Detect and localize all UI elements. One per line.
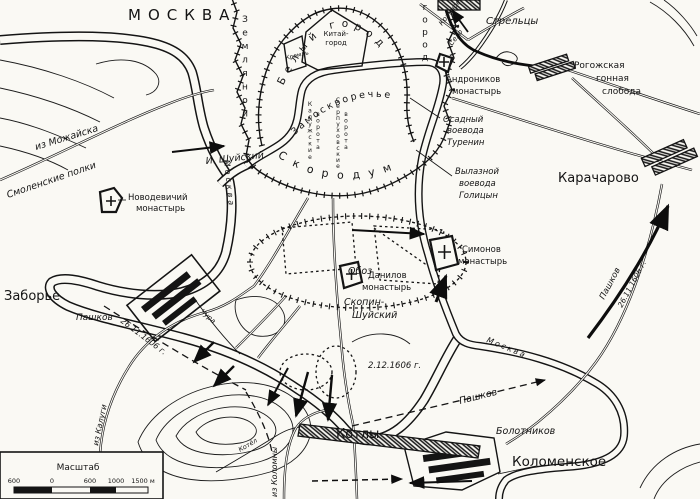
label-smolenskie-polki: Смоленские полки: [5, 160, 97, 201]
label-pashkov-south: Пашков: [458, 387, 499, 407]
fort-karacharovo: [641, 137, 697, 177]
arrow-pashkov-northeast: [588, 206, 668, 338]
label-streltsy: Стрельцы: [486, 16, 538, 27]
label-andronikov-2: монастырь: [452, 87, 501, 97]
label-bolotnikov: Болотников: [496, 426, 556, 437]
label-kotly: Котлы: [336, 427, 379, 442]
scale-box: Масштаб 600 0 600 1000 1500 м: [0, 452, 163, 499]
label-skopin-1: Скопин-: [344, 297, 385, 308]
zamoskvorechye-textpath: Замоскворечье: [289, 89, 393, 138]
scale-tick-2: 600: [84, 477, 96, 485]
map-canvas: МОСКВА Земляной город Белый город Замоск…: [0, 0, 700, 499]
label-turenin-3: Туренин: [447, 138, 485, 148]
label-novodevichy-1: Новодевичий: [128, 193, 188, 203]
roads: [0, 4, 700, 499]
label-skopin-2: Шуйский: [352, 310, 397, 321]
label-serpukhovskie-2: ворота: [344, 111, 348, 151]
label-zaborye: Заборье: [4, 289, 60, 304]
label-kaluzhskie-1: Калужские: [307, 101, 313, 161]
route-dashed-pashkov-south: [352, 380, 545, 426]
label-golitsyn-1: Вылазной: [455, 167, 499, 177]
label-kitay-1: Китай-: [324, 30, 349, 38]
scale-tick-3: 1000: [108, 477, 125, 485]
label-date-east: 26.11.1606 г.: [616, 259, 648, 309]
label-turenin-1: Осадный: [443, 115, 484, 125]
scale-tick-1: 0: [50, 477, 54, 485]
scale-title: Масштаб: [57, 463, 100, 473]
label-danilov-2: монастырь: [362, 283, 411, 293]
label-kolomenskoye: Коломенское: [512, 454, 606, 470]
label-pashkov-west: Пашков: [76, 313, 113, 323]
bridge-rogozhskaya: [529, 53, 576, 82]
scale-tick-0: 600: [8, 477, 20, 485]
label-iz-kalugi: из Калуги: [91, 404, 108, 447]
label-kotel: Котёл: [237, 437, 259, 454]
label-serpukhovskie-1: Серпуховские: [336, 97, 340, 170]
historic-map-moscow-1606: МОСКВА Земляной город Белый город Замоск…: [0, 0, 700, 499]
label-golitsyn-2: воевода: [459, 179, 496, 189]
label-kitay-2: город: [325, 39, 347, 47]
arrow-oboz-east: [352, 230, 424, 234]
label-date-center: 2.12.1606 г.: [368, 361, 421, 371]
label-krasnoe-2: Село: [447, 28, 464, 47]
label-rogozhskaya-1: Рогожская: [574, 61, 625, 71]
label-kaluzhskie-2: ворота: [316, 111, 320, 151]
label-zemlyanoy: Земляной: [242, 15, 249, 120]
label-danilov-1: Данилов: [368, 271, 407, 281]
arrow-bottom-east-dashed: [312, 479, 402, 481]
label-golitsyn-3: Голицын: [459, 191, 498, 201]
label-turenin-2: воевода: [447, 126, 484, 136]
label-rogozhskaya-3: слобода: [602, 87, 641, 97]
label-karacharovo: Карачарово: [558, 171, 639, 186]
arrow-bottom-west: [410, 481, 472, 483]
label-simonov-2: монастырь: [458, 257, 507, 267]
label-rogozhskaya-2: гонная: [596, 74, 629, 84]
label-simonov-1: Симонов: [462, 245, 501, 255]
label-iz-kolomny: из Коломны: [270, 447, 279, 497]
map-title-text: МОСКВА: [128, 6, 236, 24]
label-gorod-right: город: [422, 3, 428, 63]
label-andronikov-1: Андроников: [446, 75, 500, 85]
label-novodevichy-2: монастырь: [136, 204, 185, 214]
movement-routes: [104, 10, 668, 483]
monastery-symbol-simonov: [430, 236, 458, 270]
scale-tick-4: 1500 м: [131, 477, 155, 485]
label-zamoskvorechye: Замоскворечье: [289, 89, 393, 138]
scale-bar: [14, 487, 148, 493]
